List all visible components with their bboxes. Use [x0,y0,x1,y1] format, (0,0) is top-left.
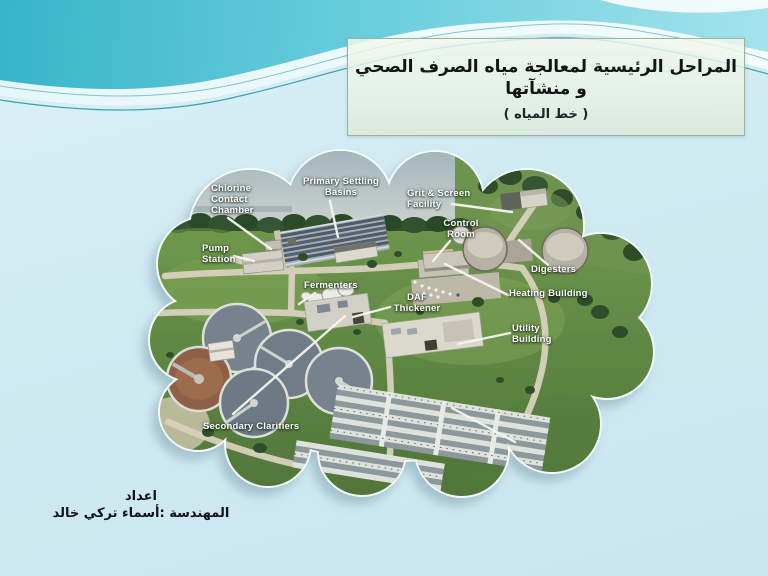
page-title: المراحل الرئيسية لمعالجة مياه الصرف الصح… [348,56,744,100]
presentation-slide: المراحل الرئيسية لمعالجة مياه الصرف الصح… [0,0,768,576]
label-utility-building: Utility Building [512,324,560,346]
label-control-room: Control Room [440,219,482,241]
label-heating-building: Heating Building [509,289,591,300]
label-pump-station: Pump Station [202,244,244,266]
label-primary-settling-basins: Primary Settling Basins [296,177,386,199]
label-grit-screen-facility: Grit & Screen Facility [407,189,477,211]
label-digesters: Digesters [531,265,583,276]
label-chlorine-contact-chamber: Chlorine Contact Chamber [211,184,271,217]
label-secondary-clarifiers: Secondary Clarifiers [203,422,303,433]
title-box: المراحل الرئيسية لمعالجة مياه الصرف الصح… [347,38,745,136]
credit-line-2: المهندسة :أسماء تركي خالد [28,506,254,523]
page-subtitle: ( خط المياه ) [348,107,744,122]
label-fermenters: Fermenters [304,281,366,292]
label-daf-thickener: DAF Thickener [391,293,443,315]
credit-line-1: اعداد [28,489,254,506]
small-shed [288,237,297,244]
credit-block: اعداد المهندسة :أسماء تركي خالد [28,489,254,523]
